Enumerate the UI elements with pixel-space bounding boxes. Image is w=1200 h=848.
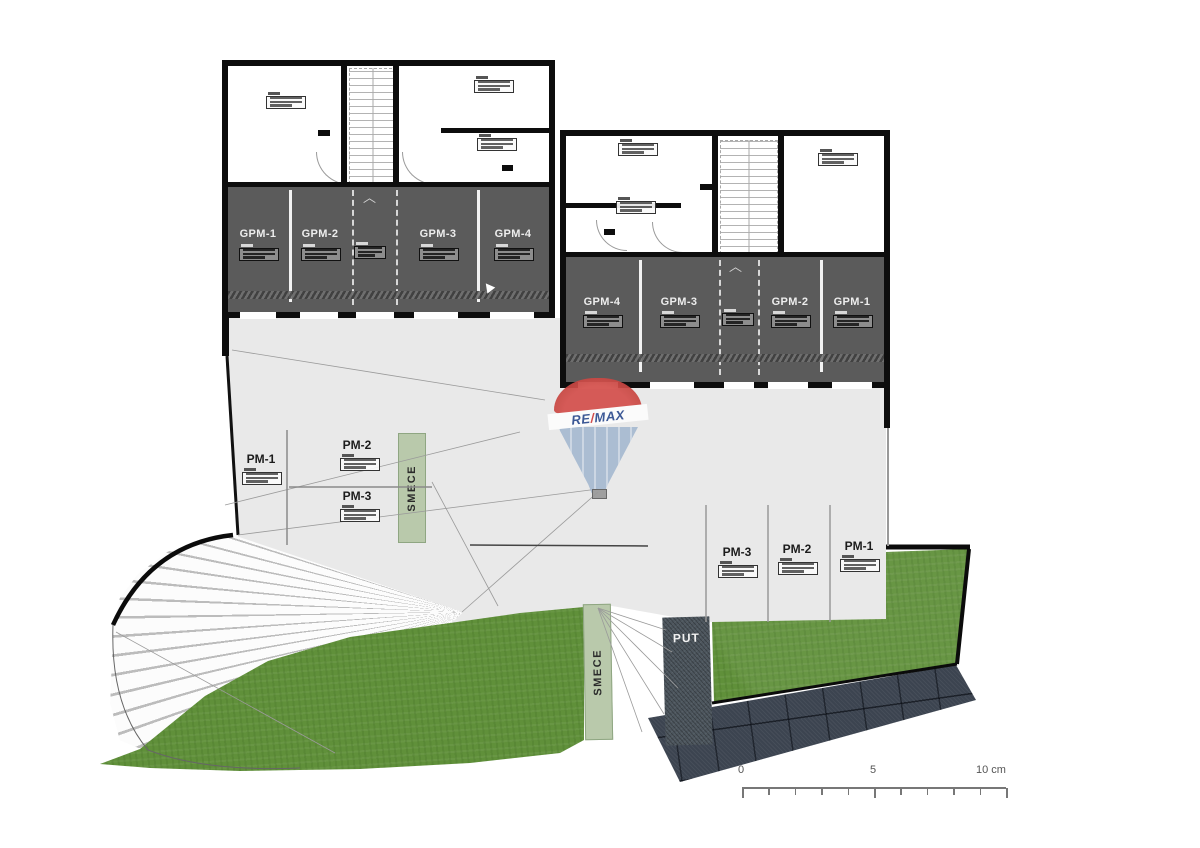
window-tick bbox=[700, 184, 714, 190]
stairwell-left bbox=[349, 68, 397, 184]
garage-door-gap bbox=[414, 312, 458, 319]
stairwell-right bbox=[720, 140, 778, 254]
stall-label: GPM-3 bbox=[407, 228, 469, 240]
unit-info-box bbox=[616, 201, 656, 214]
garage-door-gap bbox=[490, 312, 534, 319]
garage-door-gap bbox=[832, 382, 872, 389]
parking-label: PM-3 bbox=[332, 489, 382, 503]
stall-label: GPM-2 bbox=[289, 228, 351, 240]
stall-label: GPM-3 bbox=[648, 296, 710, 308]
garage-door-gap bbox=[356, 312, 394, 319]
entry-chevron-icon: ︿ bbox=[729, 262, 742, 272]
garage-door-gap bbox=[300, 312, 338, 319]
drain-channel bbox=[228, 291, 549, 299]
scale-start: 0 bbox=[738, 764, 744, 776]
unit-info-box bbox=[477, 138, 517, 151]
parking-info-box bbox=[840, 559, 880, 572]
stall-label: GPM-4 bbox=[571, 296, 633, 308]
boundary-lower-curve bbox=[113, 625, 300, 769]
parking-info-box bbox=[340, 509, 380, 522]
unit-info-box bbox=[618, 143, 658, 156]
logo-max: MAX bbox=[594, 407, 626, 425]
unit-info-box bbox=[474, 80, 514, 93]
stall-info-box bbox=[419, 248, 459, 261]
stall-info-box bbox=[301, 248, 341, 261]
stall-info-box bbox=[660, 315, 700, 328]
stall-divider bbox=[477, 190, 480, 302]
parking-info-box bbox=[778, 562, 818, 575]
stall-label: GPM-2 bbox=[759, 296, 821, 308]
wall bbox=[712, 136, 718, 257]
entry-chevron-icon: ︿ bbox=[363, 193, 376, 203]
wall bbox=[441, 128, 549, 133]
parking-label: PM-1 bbox=[236, 452, 286, 466]
wall bbox=[884, 388, 890, 428]
scale-mid: 5 bbox=[870, 764, 876, 776]
stall-label: GPM-4 bbox=[482, 228, 544, 240]
unit-info-box bbox=[266, 96, 306, 109]
balloon-basket-icon bbox=[592, 489, 607, 499]
garage-door-gap bbox=[768, 382, 808, 389]
garage-door-gap bbox=[650, 382, 694, 389]
stall-info-box bbox=[771, 315, 811, 328]
unit-info-box bbox=[818, 153, 858, 166]
parking-label: PM-1 bbox=[834, 539, 884, 553]
parking-info-box bbox=[242, 472, 282, 485]
stall-label: GPM-1 bbox=[821, 296, 883, 308]
boundary-left bbox=[227, 356, 238, 535]
wall bbox=[222, 318, 229, 356]
stall-info-box bbox=[833, 315, 873, 328]
stall-label: GPM-1 bbox=[227, 228, 289, 240]
scale-end: 10 cm bbox=[976, 764, 1006, 776]
wall bbox=[566, 252, 884, 257]
parking-info-box bbox=[340, 458, 380, 471]
corridor-line bbox=[396, 190, 398, 305]
stall-info-box bbox=[722, 313, 754, 326]
parking-label: PM-2 bbox=[332, 438, 382, 452]
wall bbox=[393, 66, 399, 185]
parking-label: PM-3 bbox=[712, 545, 762, 559]
boundary-right-edge bbox=[957, 549, 969, 664]
garage-door-gap bbox=[724, 382, 754, 389]
logo-re: RE bbox=[571, 410, 592, 427]
site-plan: PUT SMECE SMECE bbox=[0, 0, 1200, 848]
parking-info-box bbox=[718, 565, 758, 578]
boundary-stone-top bbox=[712, 664, 957, 703]
stall-info-box bbox=[583, 315, 623, 328]
stall-divider bbox=[289, 190, 292, 302]
scale-bar: 0 5 10 cm bbox=[736, 760, 1016, 802]
window-tick bbox=[502, 165, 513, 171]
remax-balloon-logo: RE/MAX bbox=[548, 376, 648, 498]
stall-info-box bbox=[354, 246, 386, 259]
drain-channel bbox=[566, 354, 884, 362]
garage-door-gap bbox=[240, 312, 276, 319]
wall bbox=[228, 182, 549, 187]
stall-info-box bbox=[239, 248, 279, 261]
stall-info-box bbox=[494, 248, 534, 261]
parking-label: PM-2 bbox=[772, 542, 822, 556]
balloon-bottom-icon bbox=[558, 427, 638, 495]
window-tick bbox=[318, 130, 330, 136]
wall bbox=[778, 136, 784, 257]
boundary-thin-line bbox=[887, 428, 889, 546]
boundary-arc bbox=[113, 535, 233, 625]
